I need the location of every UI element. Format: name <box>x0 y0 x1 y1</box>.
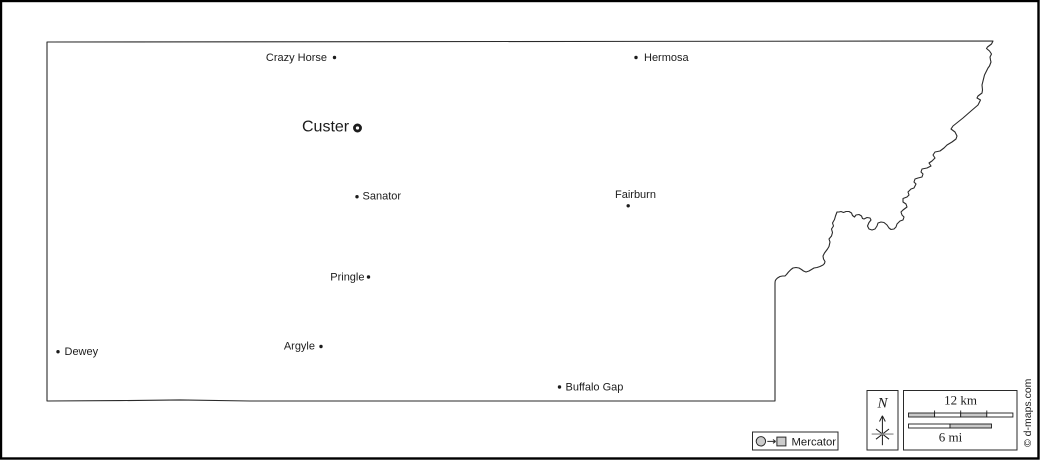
svg-text:Custer: Custer <box>302 119 350 136</box>
svg-text:Mercator: Mercator <box>792 436 837 448</box>
svg-text:Argyle: Argyle <box>284 341 315 353</box>
svg-text:Pringle: Pringle <box>330 272 364 284</box>
svg-text:© d-maps.com: © d-maps.com <box>1022 378 1034 447</box>
svg-text:Buffalo Gap: Buffalo Gap <box>566 382 624 394</box>
svg-text:Fairburn: Fairburn <box>615 189 656 201</box>
svg-text:Dewey: Dewey <box>65 346 99 358</box>
svg-text:Sanator: Sanator <box>363 191 402 203</box>
svg-text:6 mi: 6 mi <box>939 430 963 445</box>
svg-text:N: N <box>876 396 888 412</box>
svg-text:Hermosa: Hermosa <box>644 52 690 64</box>
svg-text:12 km: 12 km <box>944 393 977 408</box>
svg-text:Crazy Horse: Crazy Horse <box>266 52 327 64</box>
